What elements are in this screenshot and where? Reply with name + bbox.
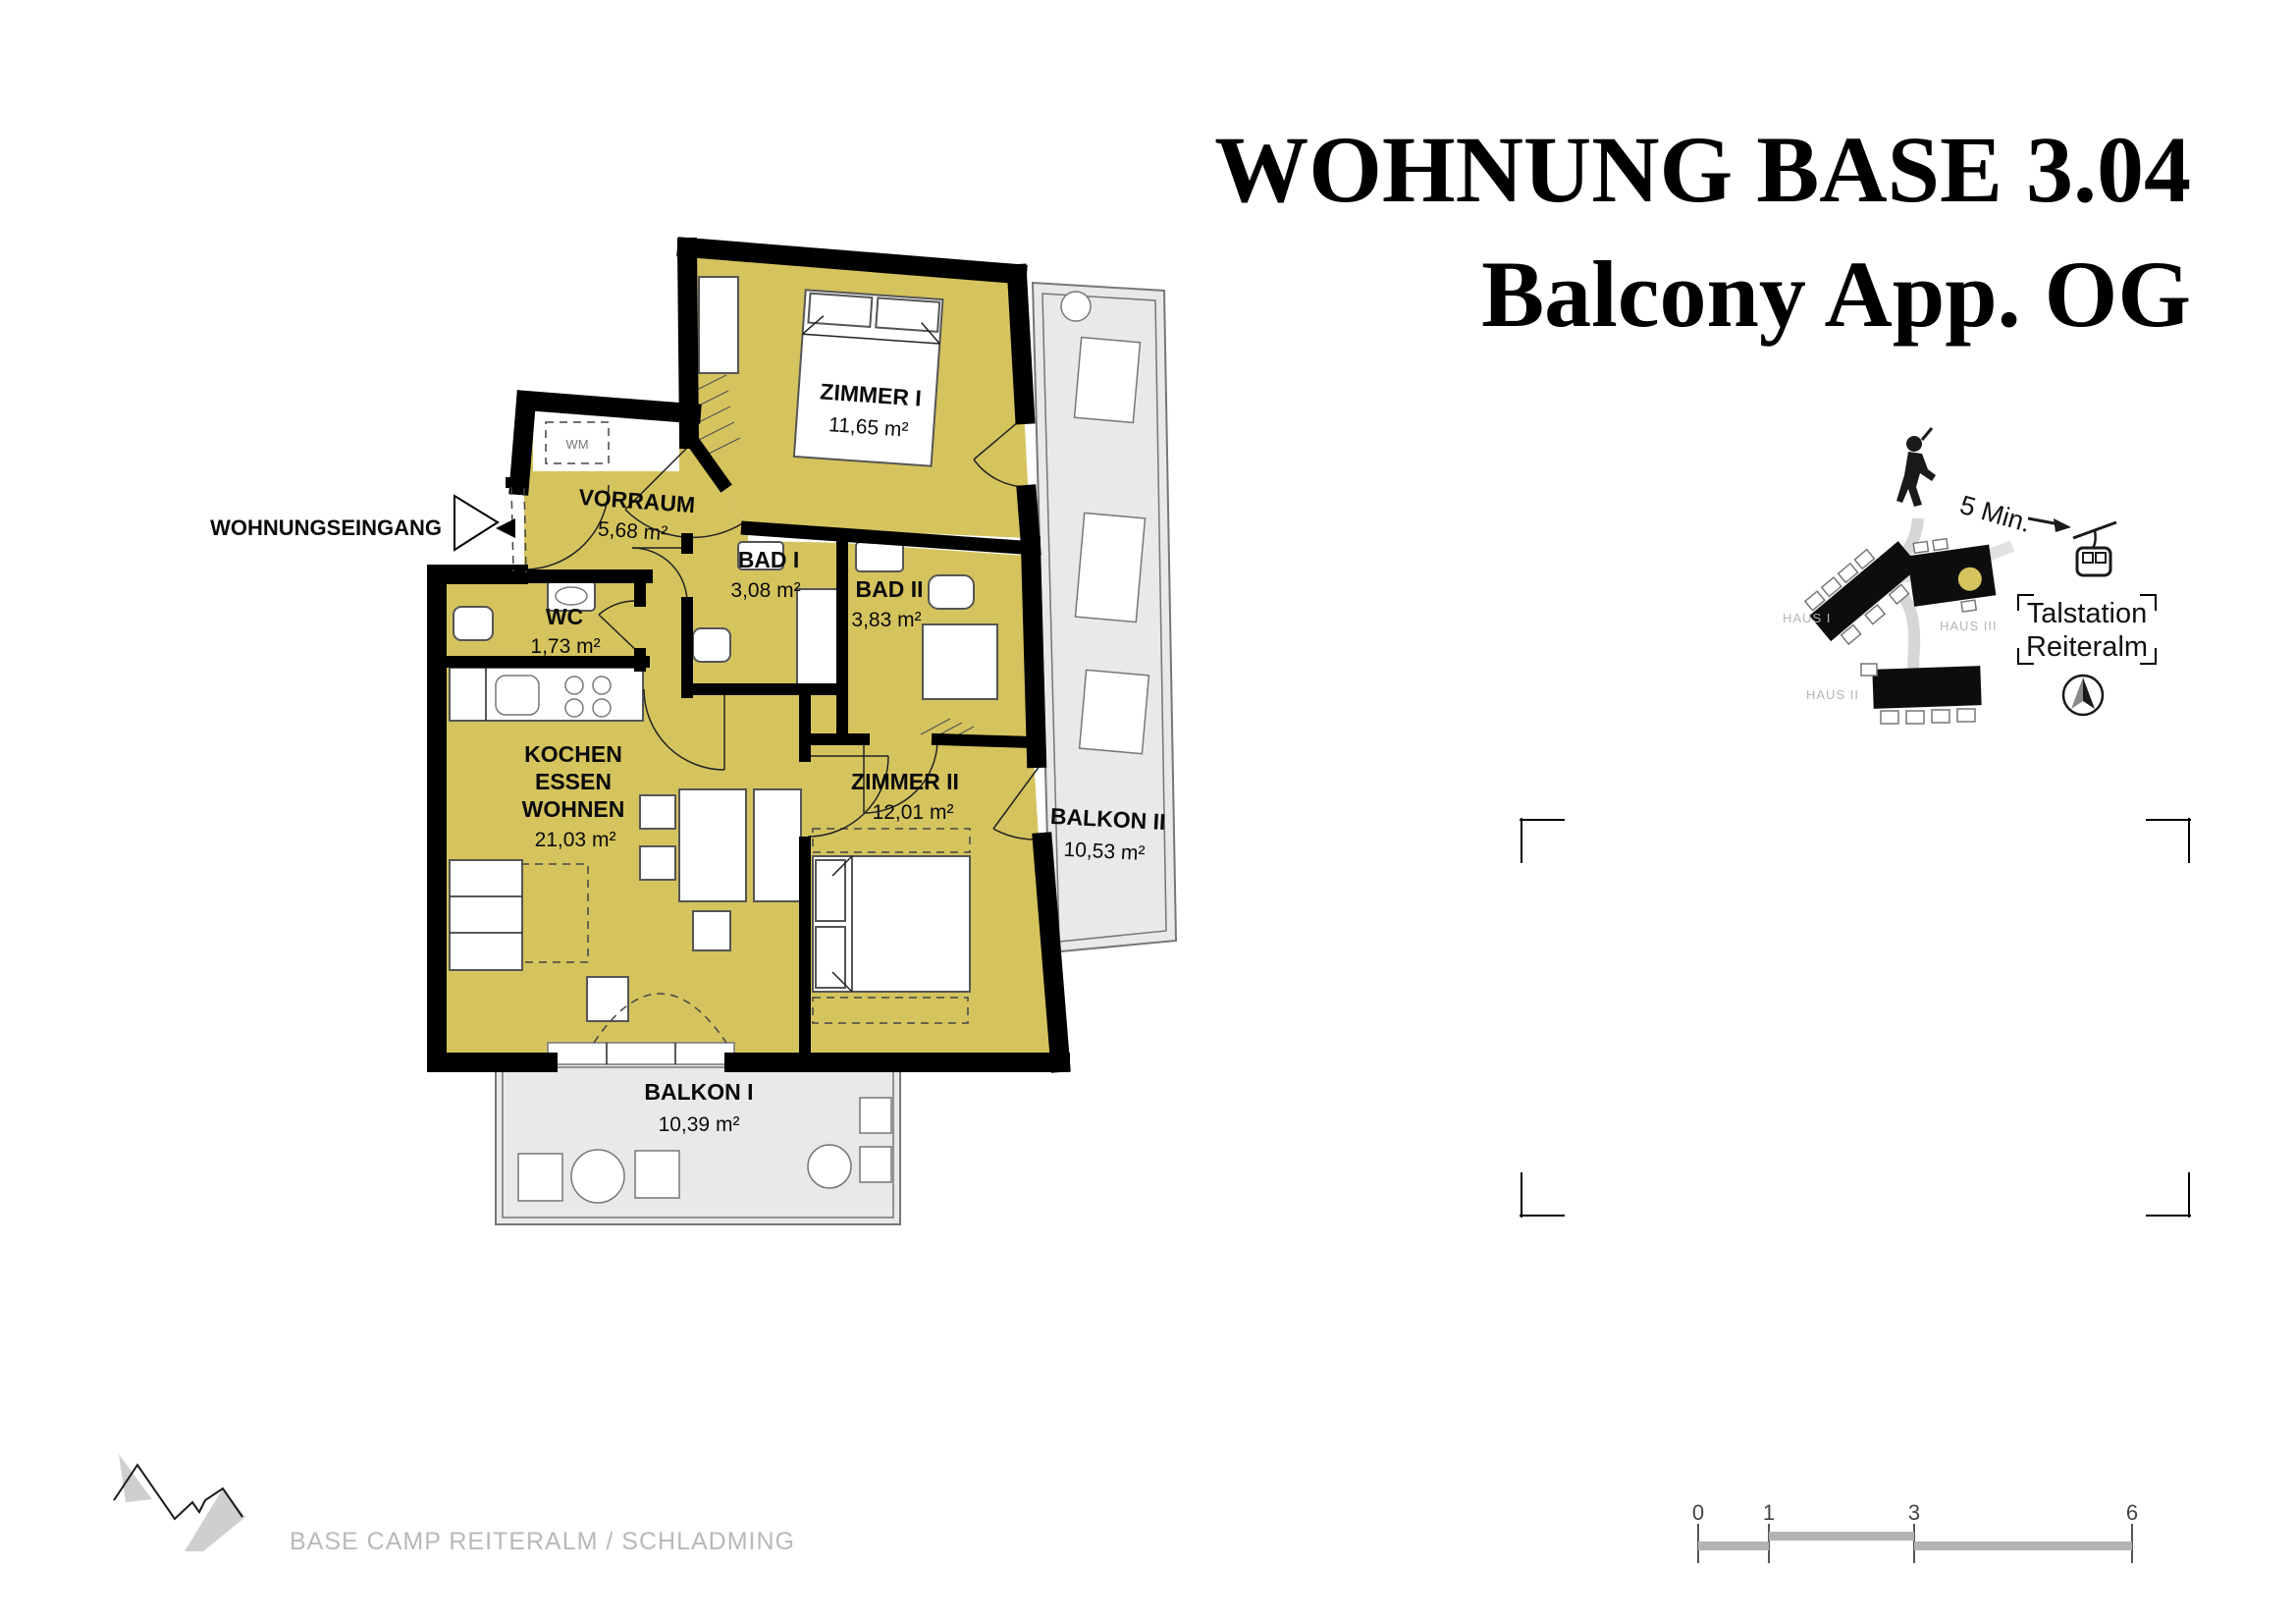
wc-toilet bbox=[454, 607, 493, 640]
scale-bar: 0 1 3 6 bbox=[1692, 1500, 2138, 1563]
haus1-label: HAUS I bbox=[1783, 611, 1831, 625]
balkon1-area: 10,39 m² bbox=[659, 1113, 740, 1136]
balcony1-chair bbox=[860, 1147, 891, 1182]
door-frame bbox=[507, 569, 523, 580]
station-label: Talstation Reiteralm bbox=[2018, 595, 2156, 664]
kitchen-sink bbox=[496, 676, 539, 715]
balcony2-table bbox=[1061, 292, 1091, 321]
site-map: 5 Min. bbox=[1783, 428, 2156, 724]
bad1-toilet bbox=[693, 628, 730, 662]
bad1-area: 3,08 m² bbox=[730, 579, 800, 602]
zimmer1-bed bbox=[794, 290, 943, 465]
entrance-callout: WOHNUNGSEINGANG bbox=[210, 496, 515, 550]
door-frame bbox=[506, 477, 521, 488]
balcony2-lounger bbox=[1075, 338, 1141, 423]
bad2-sink bbox=[856, 542, 903, 571]
balkon2-region: BALKON II 10,53 m² bbox=[1033, 283, 1176, 952]
stove-burner bbox=[565, 677, 583, 694]
bad2-toilet bbox=[929, 575, 974, 609]
footer-logo: BASE CAMP REITERALM / SCHLADMING bbox=[114, 1454, 795, 1555]
sheet-canvas: BALKON II 10,53 m² BALKON I 10,39 m² WM bbox=[0, 0, 2296, 1624]
title-line2: Balcony App. OG bbox=[1481, 242, 2191, 347]
station-line2: Reiteralm bbox=[2026, 631, 2148, 663]
balcony1-chair bbox=[518, 1154, 562, 1201]
sheet-title: WOHNUNG BASE 3.04 Balcony App. OG bbox=[1214, 117, 2191, 347]
haus3-label: HAUS III bbox=[1940, 619, 1998, 633]
zimmer2-bed bbox=[813, 856, 970, 992]
balcony1-door bbox=[548, 1043, 734, 1064]
zimmer2-name: ZIMMER II bbox=[851, 769, 959, 794]
bad2-area: 3,83 m² bbox=[851, 609, 921, 631]
sofa bbox=[450, 860, 522, 970]
zimmer2-area: 12,01 m² bbox=[873, 801, 954, 824]
coffee-table bbox=[587, 977, 628, 1021]
living-area: 21,03 m² bbox=[535, 829, 616, 851]
kitchen-counter bbox=[450, 668, 643, 721]
dining-table bbox=[679, 789, 746, 901]
wc-area: 1,73 m² bbox=[530, 635, 600, 658]
stove-burner bbox=[593, 677, 611, 694]
floorplan-sheet: BALKON II 10,53 m² BALKON I 10,39 m² WM bbox=[0, 0, 2296, 1624]
compass-icon bbox=[2063, 676, 2103, 715]
balcony1-table bbox=[808, 1145, 851, 1188]
balcony1-table bbox=[571, 1150, 624, 1203]
wc-name: WC bbox=[546, 604, 583, 629]
station-line1: Talstation bbox=[2027, 598, 2148, 629]
wm-label: WM bbox=[565, 437, 588, 452]
chair bbox=[640, 846, 675, 880]
haus2-label: HAUS II bbox=[1806, 687, 1859, 702]
balkon1-region: BALKON I 10,39 m² bbox=[496, 1060, 900, 1224]
bench bbox=[754, 789, 801, 901]
scale-3: 3 bbox=[1908, 1500, 1920, 1525]
living-line3: WOHNEN bbox=[522, 796, 625, 822]
living-line2: ESSEN bbox=[535, 769, 612, 794]
crop-marks bbox=[1520, 818, 2191, 1218]
bad2-shower bbox=[923, 624, 997, 699]
side-table bbox=[693, 911, 730, 950]
entrance-triangle-icon bbox=[454, 496, 498, 550]
walk-arrow-icon bbox=[2054, 518, 2071, 532]
entrance-arrow-icon bbox=[496, 518, 515, 538]
balkon1-name: BALKON I bbox=[644, 1079, 753, 1105]
bad1-shower bbox=[797, 589, 838, 687]
balcony1-chair bbox=[635, 1151, 679, 1198]
walking-person-icon bbox=[1896, 428, 1936, 507]
balcony1-chair bbox=[860, 1098, 891, 1133]
bad2-name: BAD II bbox=[856, 576, 924, 602]
haus3-building bbox=[1905, 533, 1998, 619]
scale-0: 0 bbox=[1692, 1500, 1704, 1525]
zimmer1-wardrobe bbox=[699, 277, 738, 373]
bad1-name: BAD I bbox=[738, 547, 800, 572]
walk-time-label: 5 Min. bbox=[1956, 490, 2034, 538]
balcony2-lounger bbox=[1080, 670, 1149, 753]
chair bbox=[640, 795, 675, 829]
entrance-label: WOHNUNGSEINGANG bbox=[210, 515, 442, 540]
scale-6: 6 bbox=[2126, 1500, 2138, 1525]
title-line1: WOHNUNG BASE 3.04 bbox=[1214, 117, 2191, 222]
gondola-icon bbox=[2073, 522, 2116, 575]
stove-burner bbox=[565, 699, 583, 717]
footer-logo-text: BASE CAMP REITERALM / SCHLADMING bbox=[290, 1528, 795, 1555]
stove-burner bbox=[593, 699, 611, 717]
living-line1: KOCHEN bbox=[524, 741, 622, 767]
mountain-shape bbox=[185, 1489, 245, 1551]
balcony2-lounger bbox=[1075, 513, 1145, 622]
scale-1: 1 bbox=[1763, 1500, 1775, 1525]
haus2-building bbox=[1861, 664, 1982, 724]
balkon2-area: 10,53 m² bbox=[1063, 839, 1146, 865]
